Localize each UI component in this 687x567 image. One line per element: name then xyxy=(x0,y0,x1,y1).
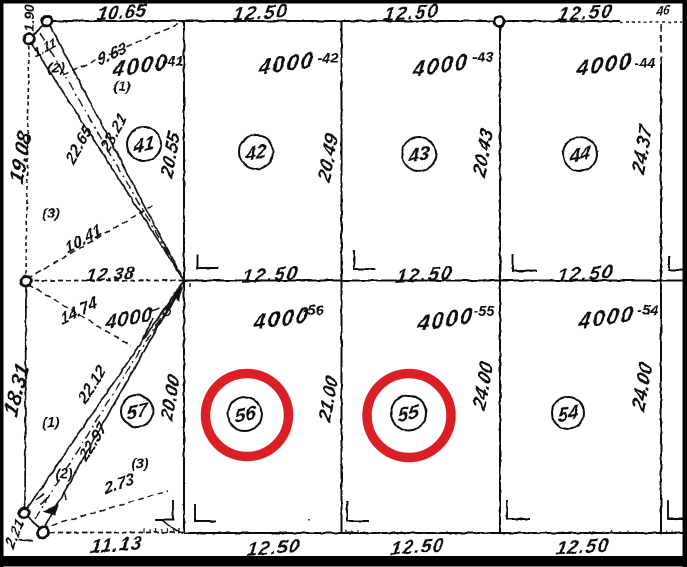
svg-text:(3): (3) xyxy=(131,455,148,471)
svg-text:-41: -41 xyxy=(163,54,184,70)
svg-text:12.50: 12.50 xyxy=(241,263,301,288)
svg-text:12.50: 12.50 xyxy=(390,535,446,560)
svg-text:(3): (3) xyxy=(42,205,59,221)
svg-text:-54: -54 xyxy=(638,303,659,319)
svg-text:1.90: 1.90 xyxy=(21,4,37,31)
svg-text:12.50: 12.50 xyxy=(395,263,455,288)
svg-text:(2): (2) xyxy=(47,59,64,75)
svg-text:11.13: 11.13 xyxy=(89,533,144,558)
svg-text:(1): (1) xyxy=(42,414,59,430)
svg-text:12.50: 12.50 xyxy=(555,535,611,560)
svg-text:46: 46 xyxy=(655,2,671,20)
svg-text:12.50: 12.50 xyxy=(556,262,616,287)
svg-text:(1): (1) xyxy=(113,78,130,94)
svg-text:(2): (2) xyxy=(55,465,72,481)
svg-text:-56: -56 xyxy=(303,303,325,319)
svg-text:-55: -55 xyxy=(474,304,496,320)
svg-text:-44: -44 xyxy=(635,56,656,72)
svg-text:-42: -42 xyxy=(318,51,339,67)
svg-text:12.38: 12.38 xyxy=(85,263,137,286)
svg-text:12.50: 12.50 xyxy=(246,536,302,561)
svg-text:12.50: 12.50 xyxy=(383,1,441,26)
svg-text:-43: -43 xyxy=(473,50,494,66)
svg-text:12.50: 12.50 xyxy=(232,1,290,26)
svg-text:10.65: 10.65 xyxy=(96,1,148,25)
svg-text:12.50: 12.50 xyxy=(557,1,615,26)
